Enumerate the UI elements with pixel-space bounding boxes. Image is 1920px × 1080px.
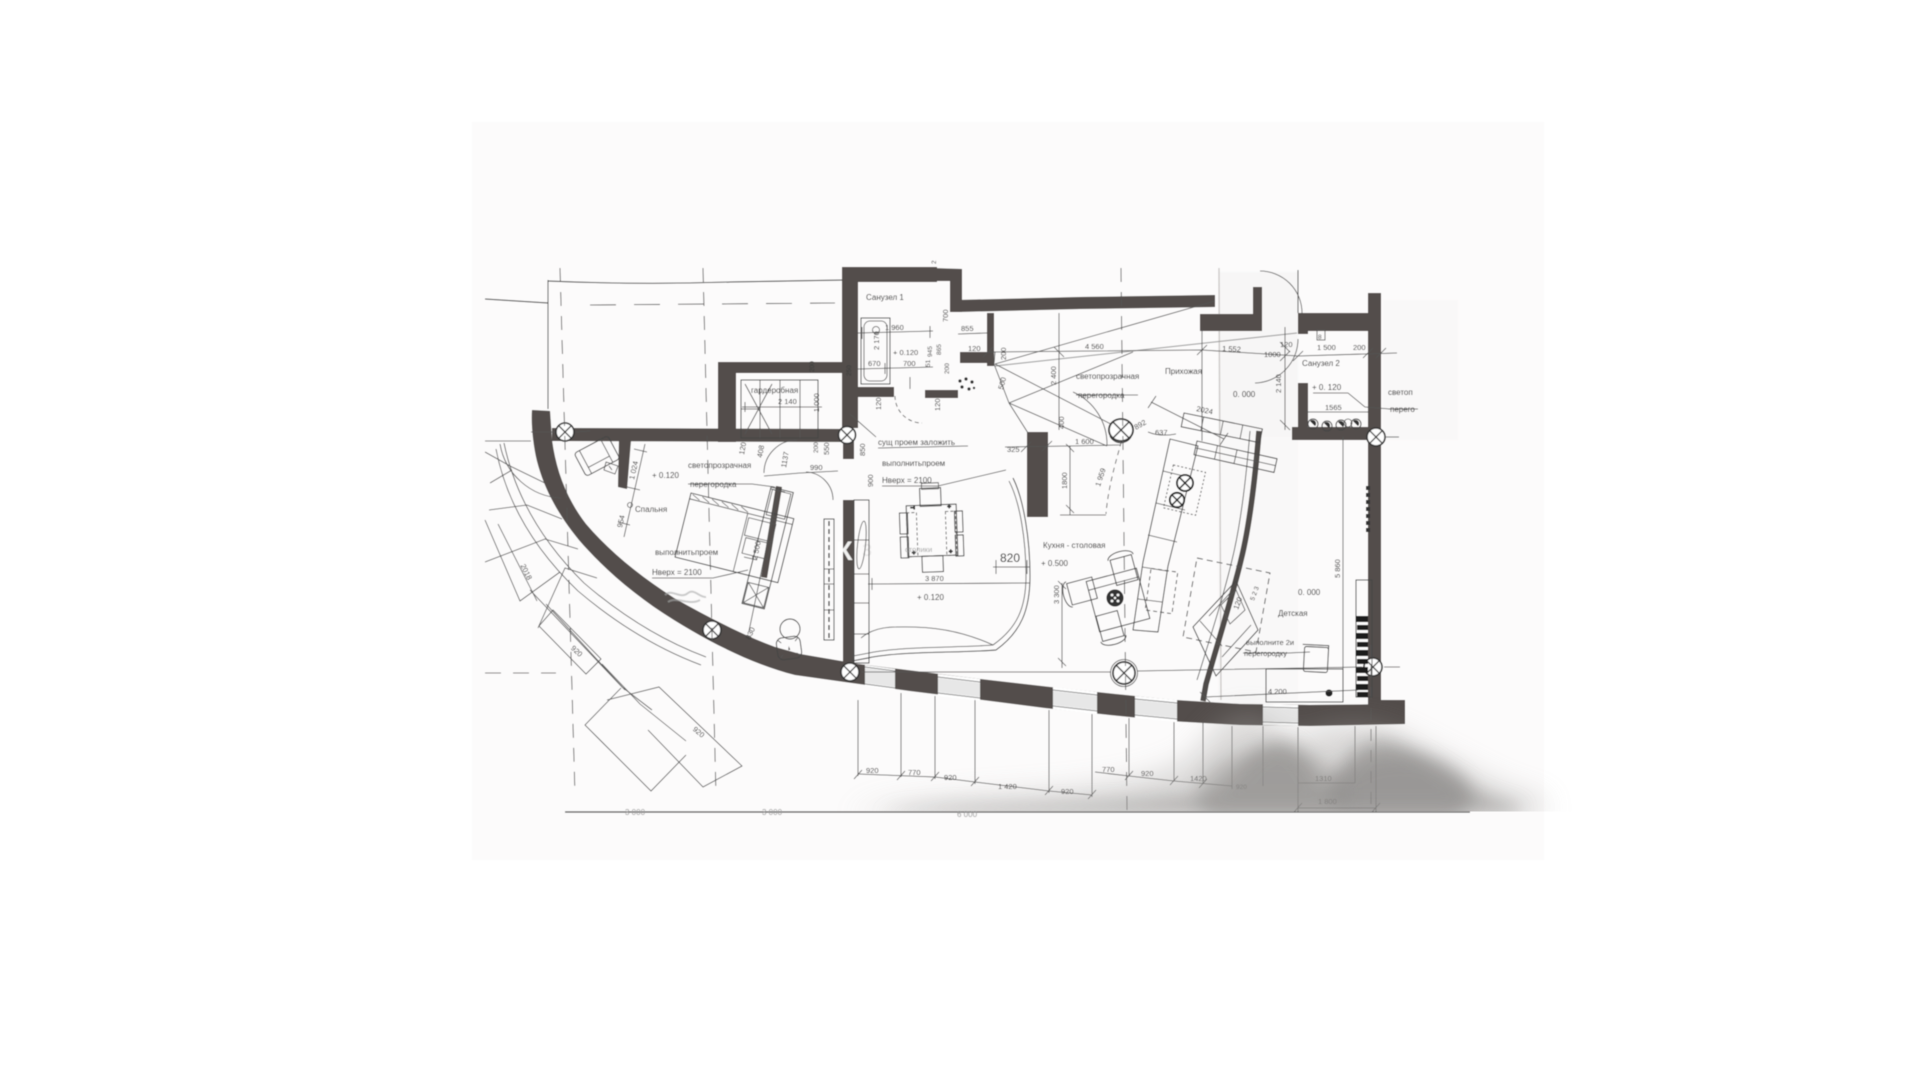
svg-text:3 870: 3 870 bbox=[925, 574, 944, 583]
svg-text:+ 0.120: + 0.120 bbox=[917, 593, 944, 602]
svg-text:200: 200 bbox=[999, 347, 1008, 360]
svg-text:900: 900 bbox=[866, 474, 875, 487]
svg-text:выполните 2и: выполните 2и bbox=[1246, 638, 1294, 647]
svg-text:1 960: 1 960 bbox=[885, 323, 904, 332]
svg-text:+ 0.500: + 0.500 bbox=[1041, 559, 1068, 568]
svg-text:4 560: 4 560 bbox=[1085, 342, 1104, 351]
svg-text:400: 400 bbox=[1057, 416, 1066, 429]
svg-text:2: 2 bbox=[931, 260, 938, 264]
svg-text:перегородка: перегородка bbox=[1078, 391, 1125, 400]
svg-text:+ 0.120: + 0.120 bbox=[893, 348, 918, 357]
svg-text:200: 200 bbox=[944, 363, 951, 374]
svg-text:865: 865 bbox=[936, 344, 943, 355]
svg-text:1 500: 1 500 bbox=[1317, 343, 1336, 352]
svg-text:550: 550 bbox=[822, 442, 831, 455]
svg-text:325: 325 bbox=[1007, 445, 1020, 454]
svg-text:120: 120 bbox=[968, 344, 981, 353]
svg-text:столики: столики bbox=[905, 545, 932, 554]
svg-text:200: 200 bbox=[809, 361, 816, 372]
svg-text:120: 120 bbox=[933, 398, 942, 411]
svg-text:920: 920 bbox=[866, 766, 879, 775]
svg-text:К: К bbox=[836, 536, 853, 566]
svg-text:920: 920 bbox=[944, 773, 957, 782]
svg-text:Санузел 1: Санузел 1 bbox=[866, 293, 904, 302]
svg-text:990: 990 bbox=[810, 463, 823, 472]
svg-text:0. 000: 0. 000 bbox=[1233, 390, 1256, 399]
svg-text:+ 0.120: + 0.120 bbox=[652, 471, 679, 480]
svg-text:выполнитьпроем: выполнитьпроем bbox=[882, 459, 945, 468]
svg-text:2 140: 2 140 bbox=[1274, 374, 1283, 393]
svg-text:перего: перего bbox=[1390, 405, 1415, 414]
svg-text:200: 200 bbox=[1353, 343, 1366, 352]
svg-text:120: 120 bbox=[1280, 340, 1293, 349]
svg-text:820: 820 bbox=[1000, 551, 1020, 565]
svg-text:Детская: Детская bbox=[1278, 609, 1308, 618]
svg-text:1 420: 1 420 bbox=[998, 782, 1017, 791]
svg-text:1565: 1565 bbox=[1325, 403, 1342, 412]
svg-text:Санузел 2: Санузел 2 bbox=[1302, 359, 1340, 368]
svg-text:светоп: светоп bbox=[1388, 388, 1413, 397]
svg-text:выполнитьпроем: выполнитьпроем bbox=[655, 548, 718, 557]
svg-text:3 000: 3 000 bbox=[762, 808, 783, 817]
svg-text:светопрозрачная: светопрозрачная bbox=[1076, 372, 1139, 381]
svg-text:855: 855 bbox=[961, 324, 974, 333]
svg-text:Прихожая: Прихожая bbox=[1165, 367, 1202, 376]
svg-text:Спальня: Спальня bbox=[635, 505, 667, 514]
svg-text:0. 000: 0. 000 bbox=[1298, 588, 1321, 597]
svg-text:2 170: 2 170 bbox=[872, 331, 881, 350]
svg-text:1800: 1800 bbox=[1060, 472, 1069, 489]
svg-text:3 300: 3 300 bbox=[1052, 585, 1061, 604]
svg-text:3 000: 3 000 bbox=[625, 808, 646, 817]
svg-text:сущ проем заложить: сущ проем заложить bbox=[878, 438, 955, 447]
svg-text:200: 200 bbox=[813, 442, 820, 453]
svg-text:2 140: 2 140 bbox=[778, 397, 797, 406]
svg-text:4 200: 4 200 bbox=[1268, 687, 1287, 696]
svg-text:5 860: 5 860 bbox=[1333, 559, 1342, 578]
svg-text:51: 51 bbox=[925, 359, 932, 367]
svg-text:1 000: 1 000 bbox=[812, 393, 821, 412]
svg-text:1 600: 1 600 bbox=[1075, 437, 1094, 446]
svg-text:1000: 1000 bbox=[1264, 350, 1281, 359]
svg-text:Кухня - столовая: Кухня - столовая bbox=[1043, 541, 1106, 550]
svg-text:670: 670 bbox=[868, 359, 881, 368]
svg-text:гардеробная: гардеробная bbox=[751, 386, 798, 395]
svg-text:8: 8 bbox=[1318, 334, 1322, 341]
svg-text:637: 637 bbox=[1155, 428, 1168, 437]
svg-text:перегородку: перегородку bbox=[1244, 649, 1287, 658]
svg-text:770: 770 bbox=[908, 768, 921, 777]
svg-text:+ 0. 120: + 0. 120 bbox=[1312, 383, 1342, 392]
svg-text:945: 945 bbox=[927, 346, 934, 357]
svg-text:700: 700 bbox=[941, 309, 950, 322]
svg-text:120: 120 bbox=[874, 397, 883, 410]
svg-text:Нверх = 2100: Нверх = 2100 bbox=[882, 476, 932, 485]
svg-text:Нверх = 2100: Нверх = 2100 bbox=[652, 568, 702, 577]
svg-text:1 552: 1 552 bbox=[1222, 344, 1241, 354]
svg-text:250: 250 bbox=[846, 365, 853, 376]
svg-text:перегородка: перегородка bbox=[690, 480, 737, 489]
svg-text:2 400: 2 400 bbox=[1049, 366, 1058, 385]
svg-text:700: 700 bbox=[903, 359, 916, 368]
svg-text:770: 770 bbox=[1102, 765, 1115, 774]
svg-text:светопрозрачная: светопрозрачная bbox=[688, 461, 751, 470]
svg-text:850: 850 bbox=[858, 443, 867, 456]
